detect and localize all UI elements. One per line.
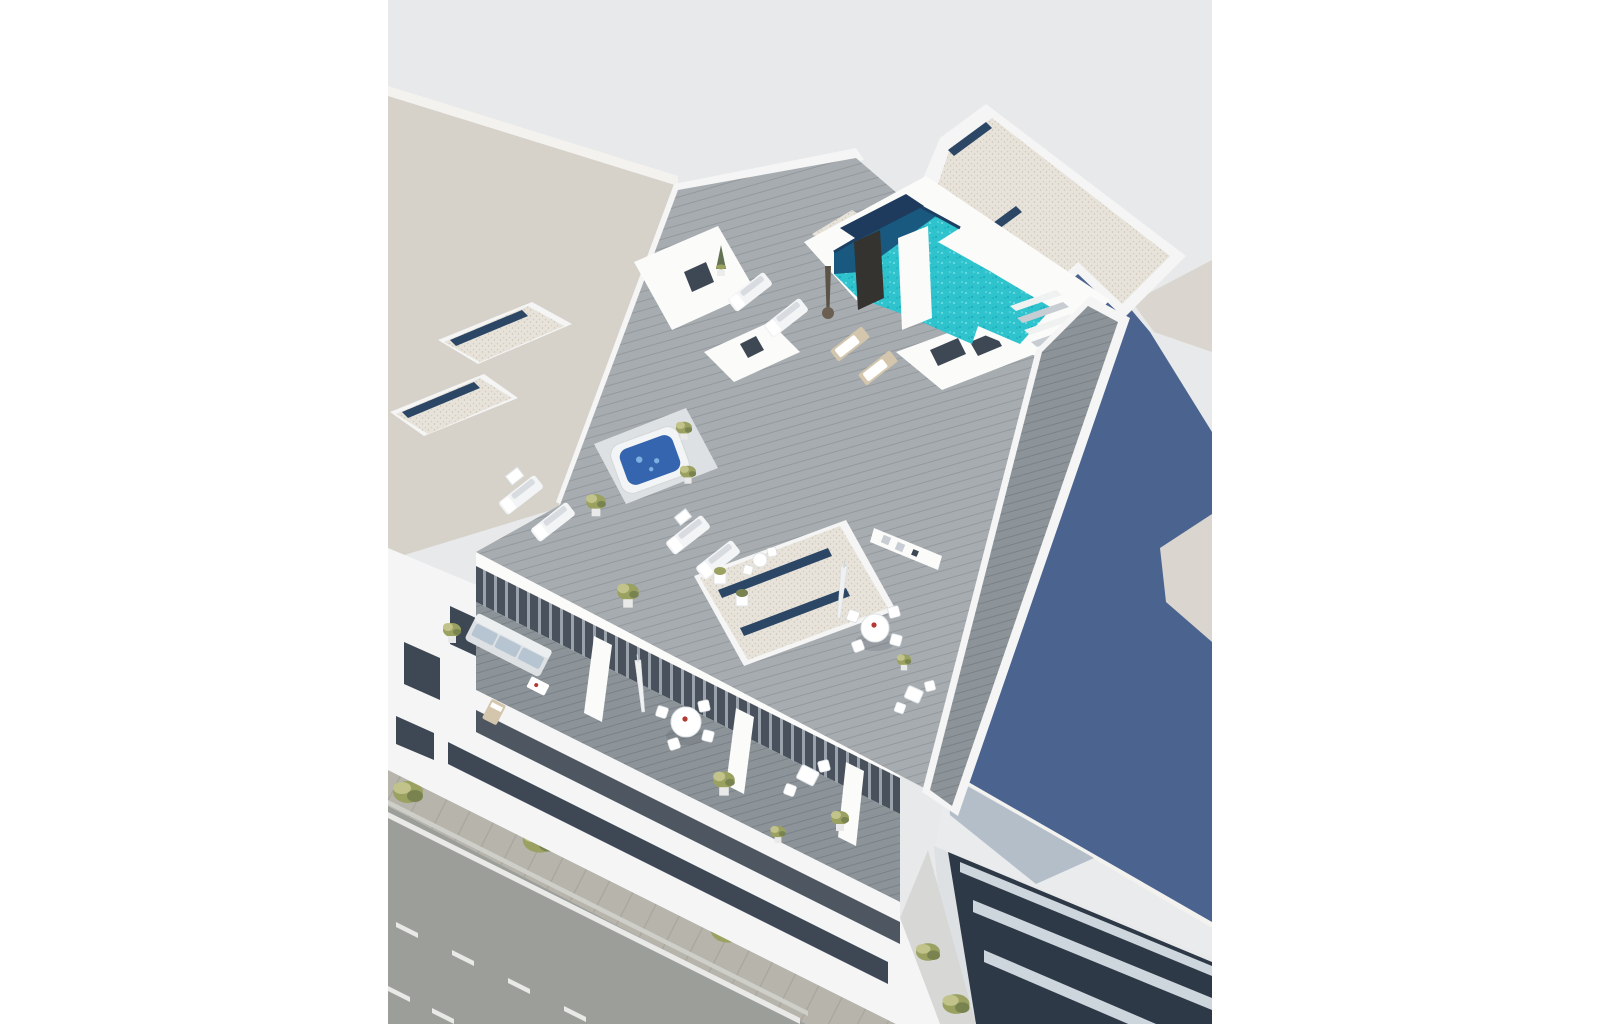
pool-column-white xyxy=(898,226,932,330)
alley-tree xyxy=(916,943,940,961)
render-area xyxy=(388,0,1212,1024)
alley-tree xyxy=(943,994,970,1014)
pool-column-dark xyxy=(854,230,884,310)
building-render xyxy=(388,0,1212,1024)
